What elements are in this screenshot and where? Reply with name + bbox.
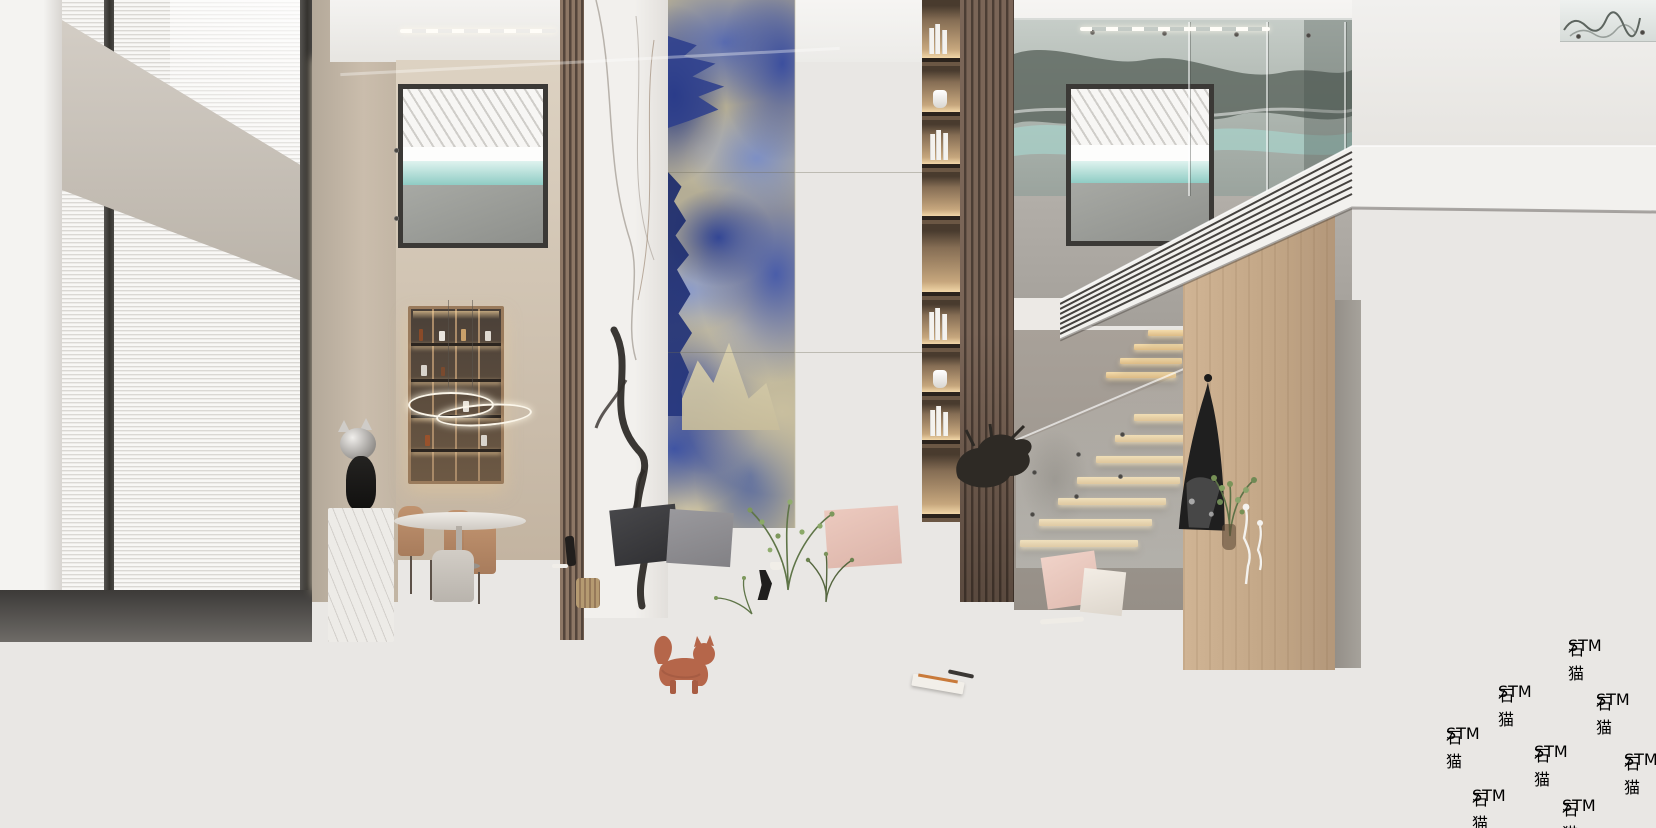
watermark-cjk: 石猫 [1472, 786, 1488, 828]
console-step [1334, 540, 1422, 588]
white-pillar [0, 0, 62, 642]
display-niche [922, 0, 960, 62]
wood-armrest-side [1160, 584, 1172, 658]
bottle [425, 435, 430, 446]
display-niche [922, 352, 960, 396]
grey-cushion [666, 509, 734, 567]
ceiling-led-strip [1080, 27, 1270, 31]
light-chair [432, 550, 474, 602]
glassware [481, 435, 487, 446]
book [930, 410, 935, 436]
marble-cream-peak [682, 318, 780, 430]
window-base-track [0, 590, 312, 642]
glass-clamp-icon [1120, 432, 1125, 437]
table-plant-sprigs [712, 576, 762, 616]
display-niche [922, 300, 960, 348]
houndstooth-cushion [891, 502, 968, 568]
book-stack [852, 590, 888, 595]
pen [948, 669, 974, 678]
watermark-cjk: 石猫 [1596, 690, 1612, 738]
glass-clamp-icon [1640, 30, 1645, 35]
book [943, 133, 948, 160]
white-wire-figurines [1238, 500, 1268, 586]
table-shadow [700, 662, 900, 688]
book [942, 314, 947, 340]
sofa-arm-right [964, 544, 1012, 648]
terracotta-cat-figurine [646, 626, 722, 700]
sculpture-body [346, 456, 376, 510]
armchair-leg [528, 624, 532, 656]
watermark-cjk: 石猫 [1624, 750, 1640, 798]
watermark-cjk: 石猫 [1534, 742, 1550, 790]
glass-clamp-icon [1234, 32, 1239, 37]
display-niche [922, 120, 960, 168]
stair-tread [1120, 358, 1182, 364]
book [930, 134, 935, 160]
vase [933, 90, 947, 108]
glass-clamp-icon [1576, 34, 1581, 39]
rug-pattern [60, 76, 240, 196]
bottle [441, 367, 445, 376]
oak-wall-side [1335, 300, 1361, 668]
slat-shade [960, 0, 1014, 602]
cabinet-shelf [411, 343, 501, 346]
cabinet-shelf [411, 449, 501, 452]
glass-clamp-icon [1306, 33, 1311, 38]
bench-shadow [1008, 668, 1158, 692]
bottle [419, 329, 423, 341]
interior-render: STM 石猫 STM 石猫 STM 石猫 STM 石猫 STM 石猫 STM 石… [0, 0, 1656, 828]
watermark-cjk: 石猫 [1562, 796, 1578, 828]
bronze-sculpture [944, 420, 1038, 498]
book [929, 312, 934, 340]
display-niche [922, 172, 960, 220]
display-niche [922, 66, 960, 116]
book [935, 308, 940, 340]
chair-leg [410, 556, 412, 594]
glass-clamp-icon [1030, 512, 1035, 517]
rug-pattern [420, 64, 840, 324]
face-vase [933, 370, 947, 388]
amber-vase [1222, 524, 1236, 550]
rattan-stool [576, 578, 600, 608]
display-niche [922, 224, 960, 296]
wood-slat-panel [960, 0, 1014, 602]
glass-squiggle [1560, 0, 1656, 42]
rolled-paper [1040, 616, 1084, 624]
ceiling-led-strip [400, 29, 556, 33]
watermark-cjk: 石猫 [1446, 724, 1462, 772]
vase [439, 331, 445, 341]
book [936, 130, 941, 160]
marble-plinth [328, 508, 394, 642]
book [935, 24, 940, 54]
book [929, 28, 934, 54]
cabinet-shelf [411, 379, 501, 382]
jar [485, 331, 491, 341]
striped-slab-fascia [1060, 140, 1656, 350]
glass-clamp-icon [1076, 452, 1081, 457]
armchair-stretcher [498, 636, 560, 639]
white-dish [552, 564, 568, 568]
glass-clamp-icon [1118, 474, 1123, 479]
corner-glass-balustrade [1560, 0, 1656, 42]
coffee-cup [770, 562, 782, 570]
glass-clamp-icon [1162, 31, 1167, 36]
chair-leg [478, 572, 480, 604]
table-leg [574, 574, 576, 622]
bottle [461, 329, 466, 341]
vase [421, 365, 427, 376]
vase-branch [800, 548, 860, 604]
rug-pattern [560, 0, 820, 100]
watermark-cjk: 石猫 [1498, 682, 1514, 730]
watermark-cjk: 石猫 [1568, 636, 1584, 684]
plinth-veins [328, 508, 394, 642]
book [936, 406, 941, 436]
book [942, 30, 947, 54]
glass-clamp-icon [1074, 494, 1079, 499]
